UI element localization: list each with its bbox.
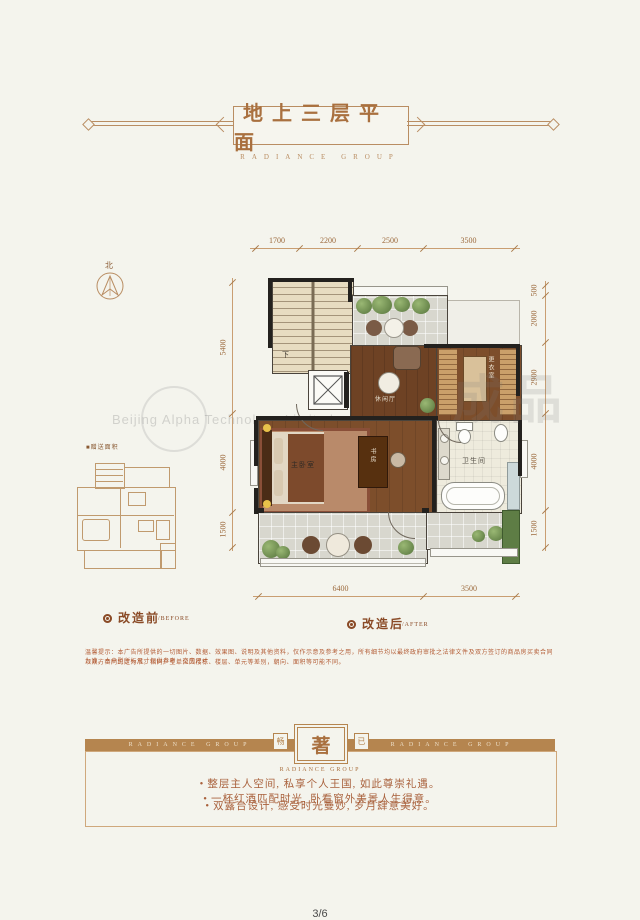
dim-label: 1500: [530, 512, 539, 546]
sink-icon: [440, 456, 449, 465]
balcony-table: [326, 533, 350, 557]
header-rule-right: [407, 121, 552, 126]
thumbnail-label: ■赠送面积: [86, 442, 119, 451]
balcony-stool: [354, 536, 372, 554]
footer-badge-right: 已: [354, 733, 369, 750]
watermark-logo-circle: [141, 386, 207, 452]
dim-label: 2900: [530, 361, 539, 395]
dim-label: 1500: [219, 513, 228, 547]
terrace-chair: [366, 320, 382, 336]
bidet-icon: [494, 424, 508, 442]
footer-bullet: 整层主人空间, 私享个人王国, 如此尊崇礼遇。: [207, 779, 440, 790]
compass-north-label: 北: [105, 260, 119, 270]
dim-label: 3500: [423, 584, 515, 593]
dim-label: 4000: [530, 445, 539, 479]
footer-banner-right: RADIANCE GROUP: [372, 742, 532, 748]
lamp-icon: [263, 500, 271, 508]
footer-badge-caption: RADIANCE GROUP: [260, 767, 380, 773]
dim-label: 3500: [423, 236, 514, 245]
legend-after-en: /AFTER: [402, 622, 429, 628]
side-railing: [430, 548, 518, 557]
study-label: 书房: [368, 448, 377, 464]
plant-icon: [420, 398, 435, 413]
armchair: [393, 346, 421, 370]
footer-badge: 著: [294, 724, 348, 764]
lamp-icon: [263, 424, 271, 432]
dim-label: 5400: [219, 331, 228, 365]
pillow: [274, 470, 283, 496]
master-label: 主卧室: [291, 460, 315, 470]
legend-before-label: 改造前: [118, 609, 160, 626]
bullet-icon: •: [205, 801, 210, 812]
bullet-icon: •: [200, 779, 205, 790]
footer-bullet: 双露台设计, 感受时光曼妙, 岁月肆意美好。: [213, 801, 435, 812]
dim-label: 2000: [530, 302, 539, 336]
footer-badge-left: 畅: [273, 733, 288, 750]
dim-label: 1700: [255, 236, 299, 245]
closet: [439, 349, 457, 415]
round-table: [378, 372, 400, 394]
dressing-label: 更衣室: [486, 356, 495, 380]
leisure-label: 休闲厅: [375, 394, 396, 403]
plant-icon: [472, 530, 485, 542]
page-title: 地上三层平面: [233, 106, 409, 145]
plant-icon: [372, 296, 392, 314]
terrace-chair: [402, 320, 418, 336]
stairs-down-label: 下: [282, 350, 290, 360]
bed-headboard: [262, 430, 272, 506]
page-number: 3/6: [300, 908, 340, 920]
bathtub: [441, 482, 505, 510]
terrace-table: [384, 318, 404, 338]
header-chevron-left: [216, 117, 232, 133]
legend-before-en: /BEFORE: [158, 616, 190, 622]
dim-label: 2500: [357, 236, 423, 245]
plant-icon: [356, 298, 372, 314]
header-rule-left: [88, 121, 233, 126]
bath-label: 卫生间: [462, 456, 486, 466]
legend-after-label: 改造后: [362, 615, 404, 632]
plant-icon: [394, 297, 410, 312]
dim-label: 2200: [299, 236, 357, 245]
plant-icon: [412, 298, 430, 314]
plant-icon: [398, 540, 414, 555]
dim-label: 6400: [258, 584, 423, 593]
footer-bullets-row2: •双露台设计, 感受时光曼妙, 岁月肆意美好。: [85, 798, 555, 813]
brochure-page: 地上三层平面 RADIANCE GROUP Beijing Alpha Tech…: [0, 0, 640, 920]
balcony-railing: [260, 558, 426, 567]
disclaimer-line2: 以双方合同约定为准。相同户型单位因楼栋、楼层、单元等差别，朝向、面积等可能不同。: [85, 659, 557, 668]
header-subtitle: RADIANCE GROUP: [220, 153, 420, 161]
north-compass-icon: [96, 272, 124, 300]
pillow: [274, 438, 283, 464]
footer-banner-left: RADIANCE GROUP: [110, 742, 270, 748]
study-chair: [390, 452, 406, 468]
closet: [500, 349, 516, 415]
footer-badge-char: 著: [297, 727, 345, 761]
dressing-island: [463, 356, 487, 402]
dim-label: 4000: [219, 446, 228, 480]
balcony-stool: [302, 536, 320, 554]
